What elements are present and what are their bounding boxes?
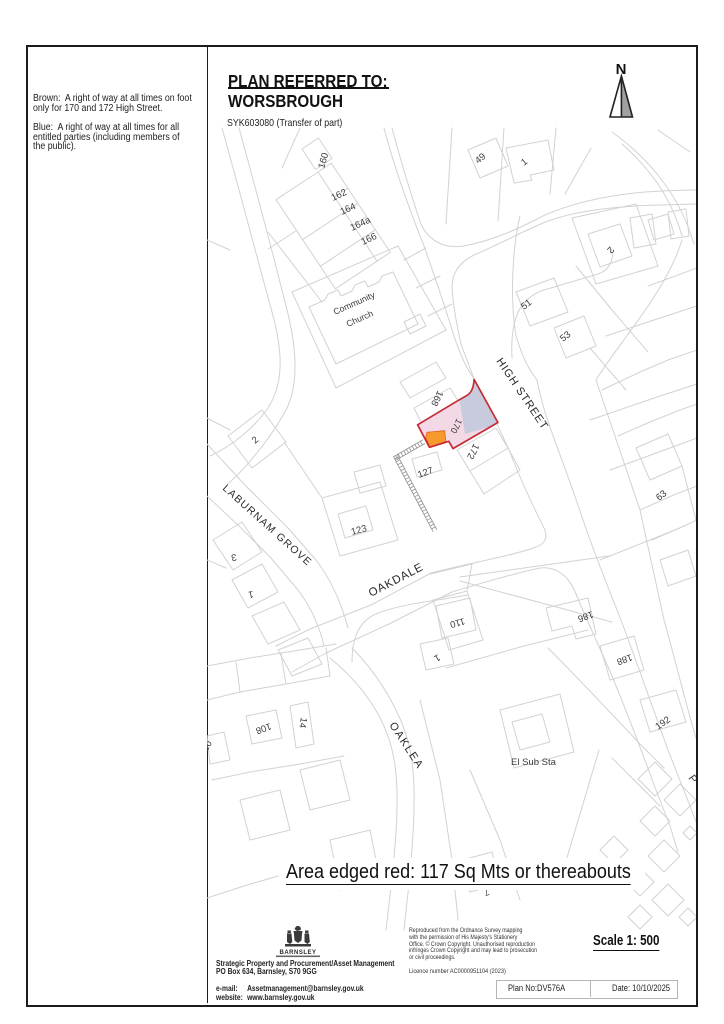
- svg-text:51: 51: [519, 297, 534, 312]
- svg-text:OAKLEA: OAKLEA: [386, 720, 425, 772]
- svg-text:2: 2: [250, 434, 261, 446]
- svg-text:10: 10: [207, 739, 215, 754]
- svg-text:BARNSLEY: BARNSLEY: [279, 950, 316, 956]
- svg-text:127: 127: [416, 465, 435, 481]
- svg-text:14: 14: [296, 716, 309, 728]
- svg-text:El Sub Sta: El Sub Sta: [511, 757, 557, 768]
- svg-text:49: 49: [473, 151, 488, 166]
- svg-text:2: 2: [604, 244, 616, 255]
- svg-text:1: 1: [519, 156, 530, 168]
- svg-text:53: 53: [558, 329, 573, 344]
- svg-text:1: 1: [247, 588, 254, 600]
- svg-text:164a: 164a: [349, 215, 373, 234]
- svg-text:123: 123: [350, 523, 368, 538]
- svg-text:P: P: [686, 773, 696, 786]
- svg-text:Church: Church: [345, 308, 375, 329]
- svg-text:110: 110: [449, 615, 466, 630]
- svg-text:108: 108: [254, 720, 273, 736]
- svg-text:HIGH STREET: HIGH STREET: [494, 356, 551, 432]
- svg-text:188: 188: [615, 651, 634, 667]
- svg-text:164: 164: [339, 201, 358, 218]
- svg-text:168: 168: [428, 389, 445, 408]
- svg-text:186: 186: [576, 608, 595, 624]
- svg-text:160: 160: [316, 152, 331, 170]
- svg-text:63: 63: [654, 488, 669, 503]
- svg-text:166: 166: [360, 231, 379, 248]
- svg-text:3: 3: [230, 551, 237, 563]
- svg-text:1: 1: [432, 651, 442, 663]
